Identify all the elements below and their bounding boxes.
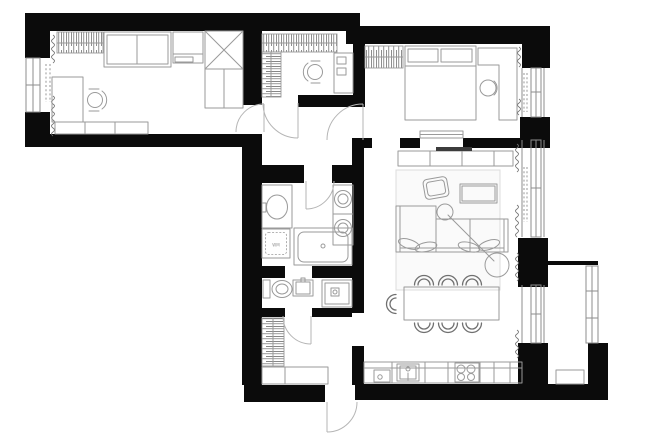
office-task-chair-back	[89, 89, 107, 111]
balcony-bench	[556, 370, 584, 384]
floor-plan-drawing: WM	[0, 0, 652, 435]
kitchen-counter	[364, 362, 522, 383]
office-desk	[52, 77, 83, 122]
office-dresser	[173, 32, 203, 63]
door-entry	[327, 402, 357, 432]
door-wc	[283, 316, 311, 344]
closet-task-chair-seat	[308, 65, 323, 80]
office-low-cabinet	[55, 122, 148, 134]
floor-plan-page: WM	[0, 0, 652, 435]
kitchen-small-fixture	[374, 370, 390, 382]
balcony-glazing	[586, 266, 598, 343]
closet-task-chair-back	[303, 61, 320, 83]
shower-cabin	[322, 280, 352, 307]
room-bedroom-office	[52, 31, 243, 134]
tv-console	[398, 151, 513, 166]
bedroom-corner-desk	[478, 48, 517, 120]
bedroom-stool	[480, 80, 496, 96]
room-living-dining-kitchen	[364, 170, 522, 383]
wall-tv	[436, 147, 472, 151]
room-entry-hall	[262, 318, 328, 384]
kitchen-sink	[397, 364, 419, 381]
oval-sink	[267, 195, 288, 219]
dining-table	[404, 287, 499, 320]
door-closet	[263, 103, 298, 138]
living-window	[522, 140, 544, 237]
office-daybed	[104, 32, 171, 67]
sliding-door-panel	[420, 131, 463, 138]
bedroom-radiator-dashes	[524, 73, 527, 112]
closet-vanity-desk	[334, 53, 353, 93]
living-radiator-dashes	[524, 167, 527, 222]
hob-4-burner	[455, 363, 479, 382]
bathtub	[294, 228, 352, 265]
room-shower-wc	[263, 278, 352, 307]
office-corner-cabinet	[205, 31, 243, 108]
door-bedroom	[327, 104, 363, 140]
room-balcony	[556, 370, 584, 384]
toilet	[263, 280, 292, 298]
hand-basin	[293, 278, 313, 296]
office-radiator-dashes	[46, 64, 50, 102]
balcony-door-window	[522, 285, 544, 343]
double-bed	[405, 46, 476, 120]
bedroom-window	[522, 68, 544, 117]
office-task-chair-seat	[88, 93, 103, 108]
dining-chair	[387, 295, 397, 314]
room-bathroom: WM	[262, 185, 353, 265]
room-walk-in-closet	[262, 34, 353, 97]
door-bathroom	[306, 181, 334, 209]
dining-chair	[439, 323, 458, 333]
bedroom-curtains	[518, 47, 521, 115]
entry-shoe-console	[262, 367, 328, 384]
washer-dryer-stack	[333, 185, 353, 245]
dining-chair	[415, 323, 434, 333]
dining-chair	[463, 323, 482, 333]
office-window	[26, 58, 40, 112]
washing-machine-label: WM	[272, 243, 280, 248]
